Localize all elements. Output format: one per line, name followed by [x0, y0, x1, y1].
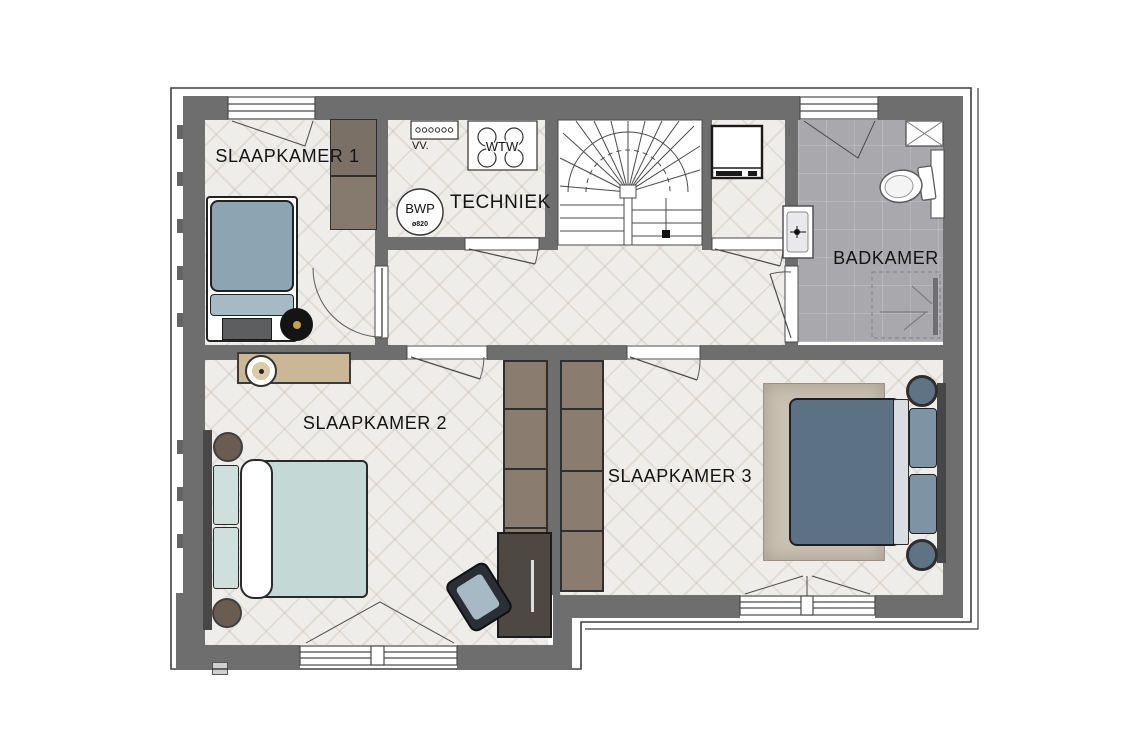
wall-techniek-stairs [545, 120, 558, 250]
floor-alcove [712, 120, 785, 238]
room-label-slaapkamer3: SLAAPKAMER 3 [605, 466, 755, 487]
bed3-pillow-top [909, 408, 937, 468]
wardrobe-bed3-divider [560, 470, 604, 472]
room-label-slaapkamer2: SLAAPKAMER 2 [300, 413, 450, 434]
bed1-bench [222, 318, 272, 340]
wardrobe-bed2-divider [503, 468, 548, 470]
desk-bed2-handle [531, 560, 534, 612]
wall-left-step [176, 593, 183, 668]
wardrobe-bed3-divider [560, 530, 604, 532]
bed3-sheet-strip [893, 399, 909, 545]
bed3-nightstand-top [906, 375, 938, 407]
wall-notch [177, 487, 183, 501]
section-marker [212, 662, 228, 675]
bed1-pillow [210, 294, 294, 316]
stool-bed1-center [293, 321, 301, 329]
wall-notch [177, 313, 183, 327]
mirror-lamp-bed2-dot [259, 369, 264, 374]
wardrobe-bed3-divider [560, 408, 604, 410]
wall-notch [177, 266, 183, 280]
floor-hallway [388, 245, 785, 345]
desk-bed2 [497, 532, 552, 638]
bed2-pillow-bottom [213, 527, 239, 589]
wall-bottom-left-a [183, 645, 300, 668]
bed2-pillow-top [213, 465, 239, 525]
bed2-nightstand-bottom [212, 598, 242, 628]
wall-top-b [315, 96, 800, 120]
wall-bottom-right-b [875, 595, 963, 618]
bed3-nightstand-bottom [906, 539, 938, 571]
wall-left [183, 96, 205, 668]
wall-notch [177, 219, 183, 233]
wardrobe-bed2-divider [503, 408, 548, 410]
wall-main-c [700, 345, 945, 360]
wall-right [943, 96, 963, 618]
wall-techniek-bottom [388, 237, 545, 250]
bed3-headboard [937, 383, 946, 563]
wall-notch [177, 172, 183, 186]
wall-bottom-right-a [553, 595, 740, 618]
floorplan-canvas: VV. WTW BWP ø820 [0, 0, 1134, 756]
wall-badkamer-left-top [785, 120, 798, 266]
wall-main-b [487, 345, 627, 360]
wardrobe-bed2-divider [503, 527, 548, 529]
bed2-bolster [240, 459, 273, 599]
floor-badkamer [798, 120, 943, 342]
bed2-headboard [203, 430, 212, 630]
wardrobe-bed3 [560, 360, 604, 592]
room-label-techniek: TECHNIEK [450, 192, 545, 214]
wall-notch [177, 125, 183, 139]
bed3-pillow-bottom [909, 474, 937, 534]
staircase [558, 120, 702, 245]
wall-notch [177, 440, 183, 454]
wall-notch [177, 534, 183, 548]
bed2-nightstand-top [213, 432, 243, 462]
wall-stairs-right [702, 120, 712, 250]
room-label-slaapkamer1: SLAAPKAMER 1 [200, 146, 375, 167]
room-label-badkamer: BADKAMER [831, 248, 941, 269]
floor-techniek [388, 120, 545, 238]
bed3-duvet [789, 398, 901, 546]
wardrobe-bed1-lower [330, 176, 377, 230]
bed1-duvet [210, 200, 294, 292]
